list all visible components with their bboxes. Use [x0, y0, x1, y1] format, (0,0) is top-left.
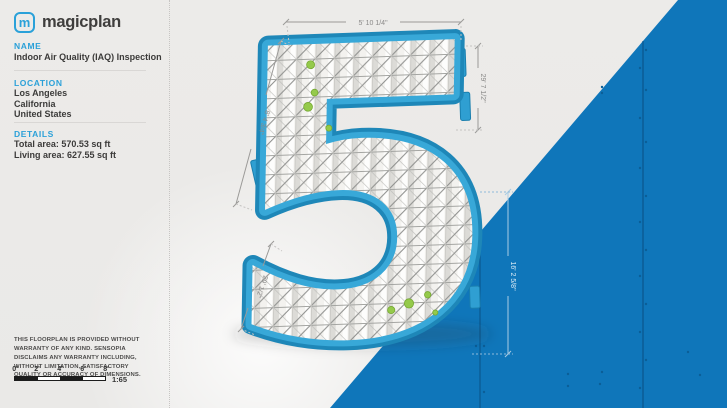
floorplan-export-page: 5 5 5: [0, 0, 727, 408]
total-area: Total area: 570.53 sq ft: [14, 139, 116, 150]
ruler-segment: [60, 377, 83, 380]
numeral-5-floorplan: 5 5 5: [203, 0, 522, 408]
location-city: Los Angeles: [14, 88, 72, 99]
scale-tick: 6': [80, 366, 86, 373]
divider: [14, 122, 146, 123]
scale-tick: 0': [12, 366, 18, 373]
location-state: California: [14, 99, 72, 110]
location-lines: Los Angeles California United States: [14, 88, 72, 120]
scale-tick: 2': [34, 366, 40, 373]
details-lines: Total area: 570.53 sq ft Living area: 62…: [14, 139, 116, 160]
dimension-label-right: 16' 2 5/8": [509, 261, 516, 291]
living-area: Living area: 627.55 sq ft: [14, 150, 116, 161]
numeral-filter-mesh: 5: [219, 0, 505, 408]
ruler-segment: [38, 377, 61, 380]
project-name: Indoor Air Quality (IAQ) Inspection: [14, 52, 162, 63]
magicplan-logo-icon: m: [14, 12, 35, 33]
brand-name: magicplan: [42, 13, 121, 32]
scale-tick-labels: 0' 2' 4' 6' 8': [14, 366, 164, 375]
scale-ruler: [14, 376, 106, 381]
section-heading-location: LOCATION: [14, 78, 63, 88]
ruler-segment: [83, 377, 106, 380]
scale-tick: 4': [57, 366, 63, 373]
dimension-label-upper-right: 29' 7 1/2": [479, 73, 486, 103]
scale-bar: 0' 2' 4' 6' 8' 1:65: [14, 366, 164, 390]
divider: [14, 70, 146, 71]
info-sidebar: m magicplan NAME Indoor Air Quality (IAQ…: [0, 0, 170, 408]
scale-tick: 8': [103, 366, 109, 373]
scale-ratio: 1:65: [112, 375, 127, 384]
brand: m magicplan: [14, 12, 121, 33]
section-heading-name: NAME: [14, 41, 41, 51]
section-heading-details: DETAILS: [14, 129, 54, 139]
dimension-label-top: 5' 10 1/4": [358, 20, 388, 27]
ruler-segment: [15, 377, 38, 380]
location-country: United States: [14, 109, 72, 120]
